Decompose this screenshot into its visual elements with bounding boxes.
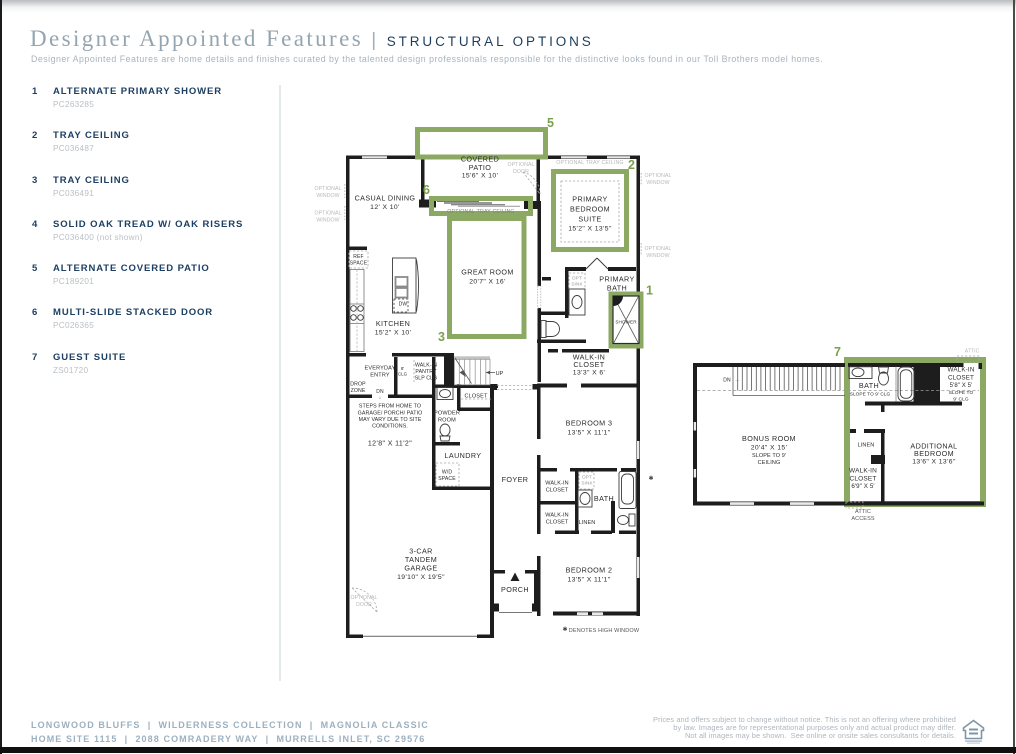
svg-text:FOYER: FOYER: [502, 475, 529, 484]
svg-text:SUITE: SUITE: [578, 215, 601, 224]
svg-text:OPTIONAL: OPTIONAL: [507, 162, 534, 168]
svg-text:PRIMARY: PRIMARY: [572, 195, 607, 204]
svg-text:CONDITIONS.: CONDITIONS.: [372, 424, 408, 430]
svg-text:20'7" X 16': 20'7" X 16': [469, 279, 506, 286]
svg-text:OPT: OPT: [582, 475, 592, 480]
svg-text:PORCH: PORCH: [501, 585, 529, 594]
svg-text:DW: DW: [399, 302, 408, 308]
svg-text:✱: ✱: [648, 475, 653, 482]
svg-text:WINDOW: WINDOW: [646, 253, 669, 259]
svg-text:CLOSET: CLOSET: [546, 488, 569, 494]
svg-text:BATH: BATH: [607, 284, 627, 293]
svg-text:ACCESS: ACCESS: [851, 516, 874, 522]
svg-text:BEDROOM 3: BEDROOM 3: [566, 419, 613, 428]
svg-text:SPACE: SPACE: [350, 261, 368, 267]
svg-text:SINK: SINK: [581, 481, 593, 486]
svg-text:MAY VARY DUE TO SITE: MAY VARY DUE TO SITE: [359, 417, 422, 423]
svg-text:WINDOW: WINDOW: [316, 218, 339, 224]
svg-text:DOOR: DOOR: [356, 602, 372, 608]
svg-text:GARAGE: GARAGE: [404, 564, 437, 573]
svg-text:PRIMARY: PRIMARY: [599, 275, 634, 284]
svg-text:LAUNDRY: LAUNDRY: [444, 451, 481, 460]
svg-text:SHOWER: SHOWER: [615, 320, 637, 325]
svg-text:✱: ✱: [562, 626, 567, 633]
svg-text:DOOR: DOOR: [513, 169, 529, 175]
svg-text:OPTIONAL: OPTIONAL: [644, 173, 671, 179]
svg-text:CLOSET: CLOSET: [948, 375, 974, 382]
svg-text:W/D: W/D: [442, 470, 452, 476]
svg-text:13'6" X 13'6": 13'6" X 13'6": [912, 459, 956, 466]
svg-text:BONUS ROOM: BONUS ROOM: [742, 434, 796, 443]
svg-text:CLOSET: CLOSET: [465, 394, 488, 400]
svg-text:13'3" X 6': 13'3" X 6': [573, 370, 605, 377]
svg-text:UP: UP: [496, 371, 504, 377]
svg-text:OPTIONAL TRAY CEILING: OPTIONAL TRAY CEILING: [556, 160, 623, 166]
svg-text:LINEN: LINEN: [858, 443, 875, 449]
svg-text:POWDER: POWDER: [434, 411, 460, 417]
svg-text:WINDOW: WINDOW: [646, 180, 669, 186]
svg-text:ATTIC: ATTIC: [855, 509, 871, 515]
svg-text:15'2" X 13'5": 15'2" X 13'5": [568, 226, 612, 233]
svg-text:OPTIONAL TRAY CEILING: OPTIONAL TRAY CEILING: [447, 209, 514, 215]
svg-text:EVERYDAY: EVERYDAY: [364, 366, 395, 372]
svg-text:ATTIC: ATTIC: [965, 349, 980, 355]
svg-text:1: 1: [646, 284, 653, 298]
svg-text:SPACE: SPACE: [438, 476, 456, 482]
svg-text:SLOPE TO: SLOPE TO: [949, 390, 974, 396]
svg-text:GARAGE/ PORCH/ PATIO: GARAGE/ PORCH/ PATIO: [358, 411, 423, 417]
svg-text:OPTIONAL: OPTIONAL: [314, 211, 341, 217]
svg-text:PATIO: PATIO: [469, 163, 492, 172]
svg-text:BEDROOM 2: BEDROOM 2: [566, 566, 613, 575]
svg-text:20'4" X 15': 20'4" X 15': [751, 445, 788, 452]
svg-text:ROOM: ROOM: [438, 418, 456, 424]
svg-text:8': 8': [401, 366, 405, 371]
svg-text:BEDROOM: BEDROOM: [570, 205, 610, 214]
svg-text:12'8" X 11'2": 12'8" X 11'2": [368, 441, 412, 448]
svg-text:CEILING: CEILING: [758, 460, 781, 466]
svg-text:WALK-IN: WALK-IN: [849, 468, 877, 475]
svg-text:OPTIONAL: OPTIONAL: [644, 246, 671, 252]
svg-text:ZONE: ZONE: [351, 388, 366, 394]
svg-text:5: 5: [547, 116, 554, 130]
svg-text:9' CLG: 9' CLG: [953, 397, 969, 403]
svg-text:BATH: BATH: [859, 381, 879, 390]
svg-text:CLOSET: CLOSET: [573, 360, 604, 369]
svg-text:SINK: SINK: [571, 282, 583, 287]
svg-text:DN: DN: [723, 378, 731, 384]
svg-text:PANTRY: PANTRY: [415, 369, 437, 375]
svg-text:WINDOW: WINDOW: [316, 193, 339, 199]
svg-text:2: 2: [628, 158, 635, 172]
svg-text:12' X 10': 12' X 10': [370, 204, 400, 211]
svg-text:GREAT ROOM: GREAT ROOM: [461, 268, 513, 277]
svg-text:CLG: CLG: [398, 372, 408, 377]
svg-text:KITCHEN: KITCHEN: [376, 319, 410, 328]
svg-text:SLOPE TO 9' CLG: SLOPE TO 9' CLG: [850, 392, 891, 397]
svg-text:6: 6: [423, 183, 430, 197]
svg-text:CLOSET: CLOSET: [850, 476, 877, 483]
svg-text:3: 3: [438, 330, 445, 344]
svg-text:REF: REF: [353, 254, 364, 260]
svg-text:15'6" X 10': 15'6" X 10': [462, 173, 499, 180]
svg-text:BATH: BATH: [594, 494, 614, 503]
svg-text:→: →: [735, 378, 740, 384]
svg-text:WALK-IN: WALK-IN: [415, 363, 437, 369]
svg-text:ENTRY: ENTRY: [370, 373, 390, 379]
svg-text:7: 7: [834, 345, 841, 359]
svg-text:DENOTES HIGH WINDOW: DENOTES HIGH WINDOW: [569, 628, 640, 634]
svg-text:6'9" X 5': 6'9" X 5': [851, 483, 874, 490]
svg-text:SLOPE TO 9': SLOPE TO 9': [752, 453, 786, 459]
svg-text:LINEN: LINEN: [579, 520, 596, 526]
svg-text:CASUAL DINING: CASUAL DINING: [355, 194, 416, 203]
svg-text:OPT: OPT: [572, 276, 582, 281]
svg-text:OPTIONAL: OPTIONAL: [314, 186, 341, 192]
svg-text:WALK-IN: WALK-IN: [545, 481, 568, 487]
svg-text:OPTIONAL: OPTIONAL: [350, 595, 377, 601]
svg-text:19'10" X 19'5": 19'10" X 19'5": [397, 574, 445, 581]
svg-text:WALK-IN: WALK-IN: [947, 367, 974, 374]
svg-text:CLOSET: CLOSET: [546, 520, 569, 526]
svg-text:5'8" X 5': 5'8" X 5': [950, 383, 973, 389]
svg-text:13'5" X 11'1": 13'5" X 11'1": [567, 577, 610, 584]
svg-text:DROP: DROP: [350, 382, 366, 388]
svg-text:13'5" X 11'1": 13'5" X 11'1": [567, 430, 610, 437]
svg-text:SLP CLG: SLP CLG: [415, 376, 438, 382]
svg-text:STEPS FROM HOME TO: STEPS FROM HOME TO: [359, 404, 421, 410]
svg-text:15'2" X 10': 15'2" X 10': [375, 330, 412, 337]
svg-text:WALK-IN: WALK-IN: [545, 513, 568, 519]
svg-text:BEDROOM: BEDROOM: [914, 449, 954, 458]
svg-text:↓: ↓: [379, 395, 382, 401]
